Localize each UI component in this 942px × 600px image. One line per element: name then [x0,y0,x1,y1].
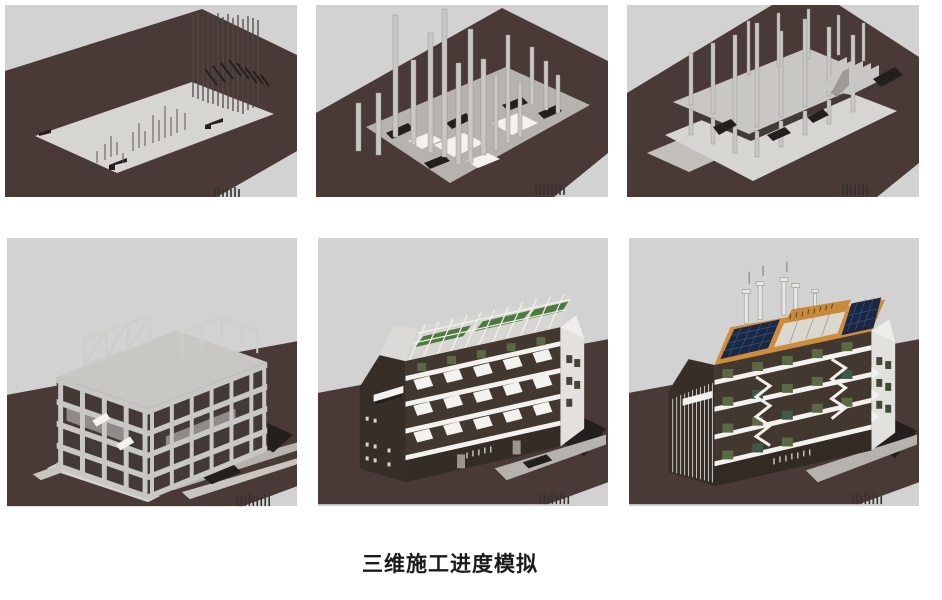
panel-stage-4-structure [7,237,297,507]
render-stage-5 [318,237,608,507]
render-stage-2 [316,5,608,197]
figure-caption: 三维施工进度模拟 [0,550,921,578]
panel-stage-6-completed [629,237,919,507]
render-stage-4 [7,237,297,507]
right-gable-wall [871,331,895,450]
render-stage-6 [629,237,919,507]
panel-row-bottom [7,237,919,507]
panel-stage-2-columns [316,5,608,197]
construction-simulation-figure: 三维施工进度模拟 [0,0,942,600]
panel-stage-1-foundation [5,5,297,197]
edge-ticks [215,187,239,197]
panel-stage-5-envelope [318,237,608,507]
render-stage-3 [627,5,919,197]
right-gable-wall [560,327,584,446]
edge-ticks [843,183,867,195]
panel-row-top [5,5,919,197]
panel-stage-3-first-floor [627,5,919,197]
render-stage-1 [5,5,297,197]
